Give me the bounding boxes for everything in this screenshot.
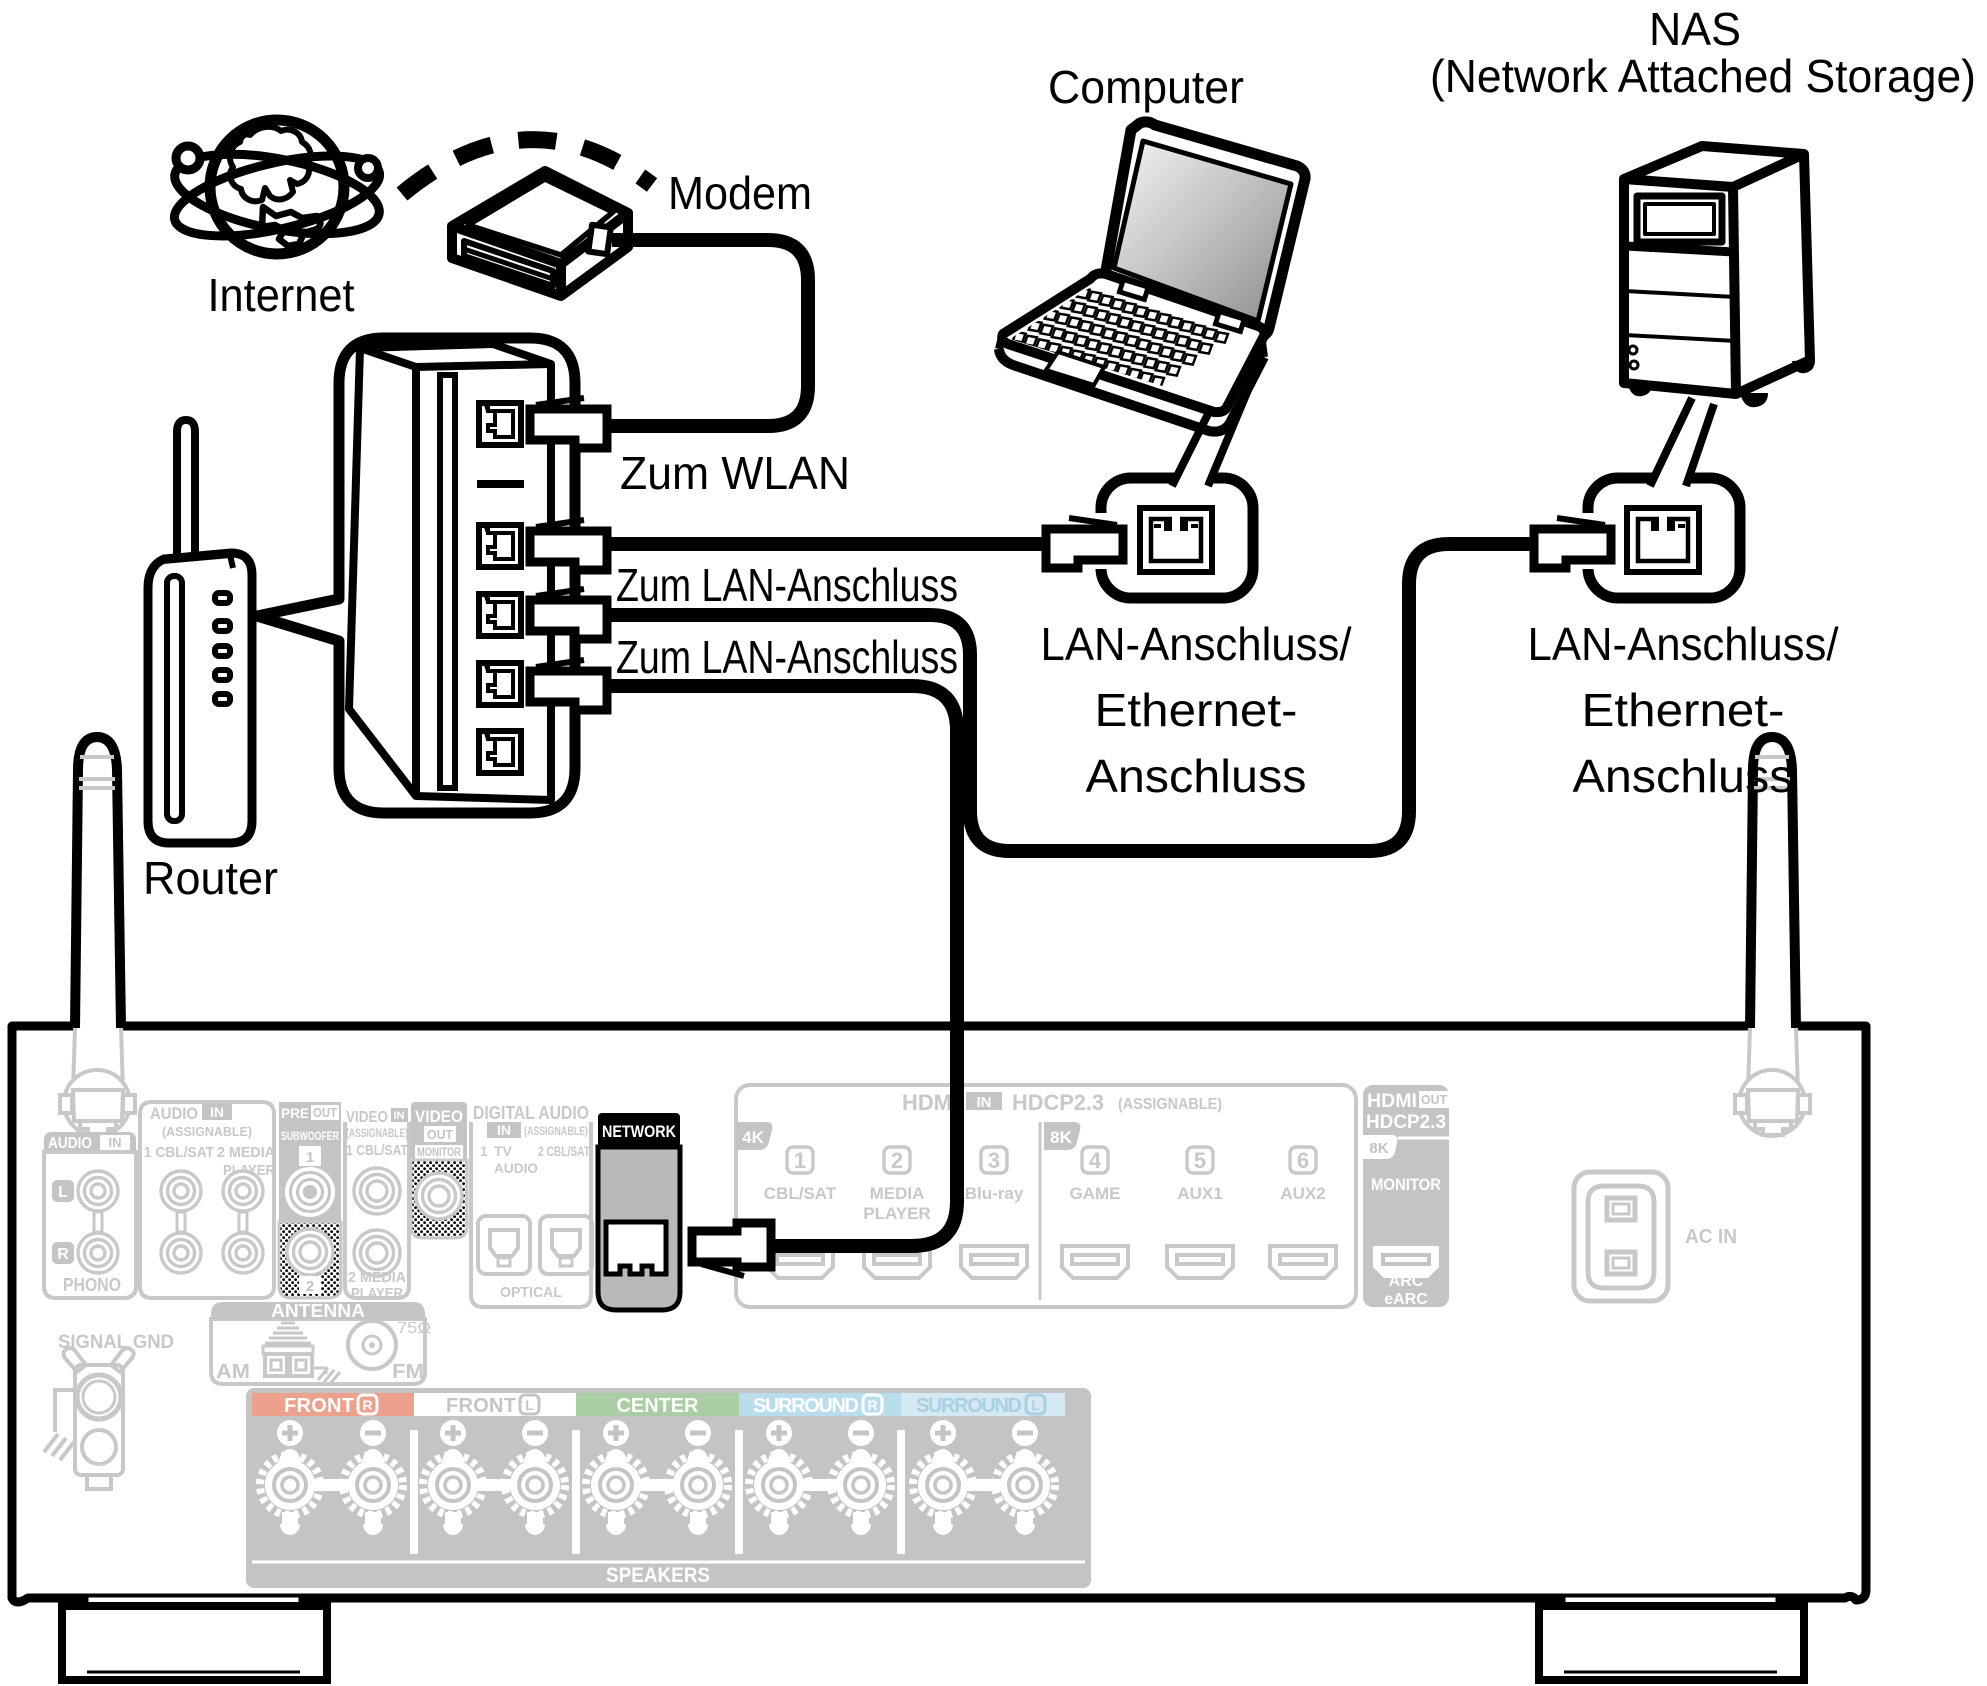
svg-text:R: R <box>867 1397 877 1413</box>
svg-text:2 MEDIA: 2 MEDIA <box>348 1269 406 1286</box>
svg-text:Ethernet-: Ethernet- <box>1095 684 1298 736</box>
svg-text:IN: IN <box>977 1094 992 1111</box>
svg-text:5: 5 <box>1194 1148 1206 1173</box>
svg-text:1: 1 <box>306 1149 314 1166</box>
svg-text:1 CBL/SAT: 1 CBL/SAT <box>144 1144 214 1161</box>
svg-text:1 CBL/SAT: 1 CBL/SAT <box>346 1142 408 1159</box>
svg-text:AC IN: AC IN <box>1685 1226 1737 1248</box>
svg-text:Anschluss: Anschluss <box>1573 750 1794 802</box>
svg-text:(ASSIGNABLE): (ASSIGNABLE) <box>1118 1096 1222 1113</box>
svg-text:Ethernet-: Ethernet- <box>1582 684 1785 736</box>
svg-text:2 MEDIA: 2 MEDIA <box>217 1144 275 1161</box>
svg-text:PHONO: PHONO <box>63 1275 121 1295</box>
svg-text:Computer: Computer <box>1048 61 1244 113</box>
svg-text:Router: Router <box>143 852 278 904</box>
svg-text:SURROUND: SURROUND <box>916 1395 1022 1417</box>
svg-text:NETWORK: NETWORK <box>602 1122 677 1141</box>
svg-text:Zum LAN-Anschluss: Zum LAN-Anschluss <box>616 559 958 611</box>
svg-text:8K: 8K <box>1050 1128 1072 1147</box>
svg-text:L: L <box>525 1397 534 1413</box>
svg-text:(ASSIGNABLE): (ASSIGNABLE) <box>346 1126 408 1140</box>
svg-text:75Ω: 75Ω <box>397 1320 431 1337</box>
svg-text:ANTENNA: ANTENNA <box>271 1301 365 1321</box>
svg-text:HDCP2.3: HDCP2.3 <box>1012 1090 1104 1115</box>
svg-text:(ASSIGNABLE): (ASSIGNABLE) <box>524 1124 588 1138</box>
svg-text:AUDIO: AUDIO <box>494 1160 538 1176</box>
svg-text:SPEAKERS: SPEAKERS <box>606 1564 710 1587</box>
svg-text:HDCP2.3: HDCP2.3 <box>1366 1112 1446 1133</box>
svg-text:HDMI: HDMI <box>902 1090 958 1115</box>
svg-text:VIDEO: VIDEO <box>346 1109 388 1126</box>
svg-text:Internet: Internet <box>208 269 355 321</box>
svg-text:FRONT: FRONT <box>284 1395 354 1417</box>
svg-text:Zum LAN-Anschluss: Zum LAN-Anschluss <box>616 631 958 683</box>
svg-text:ARC: ARC <box>1389 1273 1424 1290</box>
svg-text:Blu-ray: Blu-ray <box>965 1184 1024 1203</box>
svg-text:AUDIO: AUDIO <box>150 1104 198 1123</box>
svg-text:MONITOR: MONITOR <box>417 1145 461 1159</box>
svg-text:1: 1 <box>794 1148 806 1173</box>
svg-text:AUX2: AUX2 <box>1280 1184 1325 1203</box>
svg-text:Anschluss: Anschluss <box>1086 750 1307 802</box>
svg-text:CENTER: CENTER <box>617 1395 700 1417</box>
svg-text:GAME: GAME <box>1070 1184 1121 1203</box>
svg-text:eARC: eARC <box>1384 1291 1428 1308</box>
svg-text:1: 1 <box>480 1143 488 1159</box>
svg-text:FM: FM <box>392 1361 424 1383</box>
svg-text:HDMI: HDMI <box>1367 1091 1417 1112</box>
svg-text:(Network Attached Storage): (Network Attached Storage) <box>1430 50 1976 102</box>
svg-text:FRONT: FRONT <box>446 1395 516 1417</box>
svg-text:(ASSIGNABLE): (ASSIGNABLE) <box>162 1124 252 1139</box>
svg-text:DIGITAL AUDIO: DIGITAL AUDIO <box>473 1103 589 1123</box>
svg-text:OUT: OUT <box>427 1127 453 1142</box>
svg-text:IN: IN <box>394 1110 405 1122</box>
svg-text:LAN-Anschluss/: LAN-Anschluss/ <box>1041 618 1352 670</box>
svg-text:VIDEO: VIDEO <box>415 1107 463 1126</box>
svg-text:TV: TV <box>494 1143 513 1159</box>
svg-text:AM: AM <box>216 1361 250 1383</box>
svg-text:L: L <box>1031 1397 1040 1413</box>
svg-text:AUX1: AUX1 <box>1177 1184 1222 1203</box>
svg-text:PLAYER: PLAYER <box>351 1285 403 1302</box>
svg-text:MONITOR: MONITOR <box>1371 1175 1441 1194</box>
svg-text:AUDIO: AUDIO <box>48 1135 92 1152</box>
svg-text:IN: IN <box>497 1122 511 1138</box>
svg-text:R: R <box>362 1397 372 1413</box>
svg-text:SUBWOOFER: SUBWOOFER <box>281 1129 339 1143</box>
svg-text:OUT: OUT <box>313 1105 337 1120</box>
svg-text:4K: 4K <box>742 1128 764 1147</box>
svg-text:2: 2 <box>891 1148 903 1173</box>
svg-text:NAS: NAS <box>1649 3 1741 55</box>
svg-text:2: 2 <box>306 1278 314 1295</box>
svg-text:CBL/SAT: CBL/SAT <box>764 1184 837 1203</box>
svg-text:L: L <box>58 1184 68 1201</box>
svg-text:4: 4 <box>1089 1148 1102 1173</box>
svg-text:6: 6 <box>1297 1148 1309 1173</box>
svg-text:LAN-Anschluss/: LAN-Anschluss/ <box>1528 618 1839 670</box>
svg-text:PLAYER: PLAYER <box>863 1204 930 1223</box>
svg-text:SURROUND: SURROUND <box>753 1395 859 1417</box>
svg-text:OUT: OUT <box>1421 1092 1447 1107</box>
svg-text:IN: IN <box>210 1104 224 1120</box>
svg-text:PRE: PRE <box>281 1105 309 1121</box>
svg-text:OPTICAL: OPTICAL <box>500 1284 562 1301</box>
svg-text:R: R <box>57 1246 69 1263</box>
svg-text:8K: 8K <box>1369 1140 1388 1157</box>
svg-text:3: 3 <box>988 1148 1000 1173</box>
svg-text:2 CBL/SAT: 2 CBL/SAT <box>538 1143 590 1159</box>
svg-text:Modem: Modem <box>668 167 812 219</box>
svg-text:IN: IN <box>109 1135 122 1150</box>
svg-text:Zum WLAN: Zum WLAN <box>620 447 850 499</box>
svg-text:MEDIA: MEDIA <box>870 1184 925 1203</box>
